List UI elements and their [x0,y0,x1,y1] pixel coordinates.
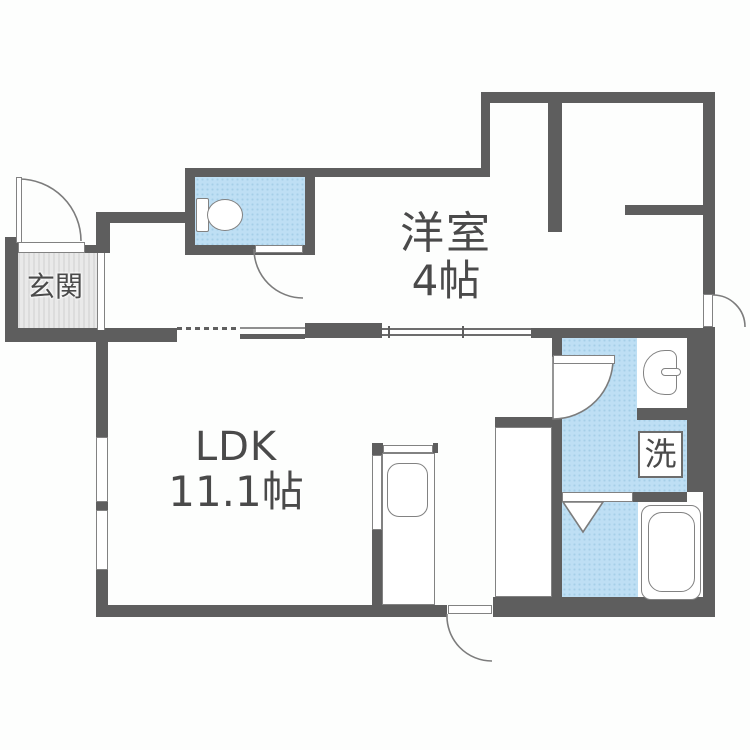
wall-western-room-south-east [531,328,715,338]
wall-washbasin-south [637,408,692,420]
laundry-label: 洗 [638,437,683,472]
western-room-door-arc [252,247,308,303]
wall-corridor-north [96,212,185,223]
wall-top [481,92,715,103]
wall-western-room-west-upper [305,168,315,255]
kitchen-side-panel [372,455,382,530]
wall-bathroom-north [633,492,687,502]
genkan-step-edge [97,253,105,330]
kitchen-partition-cabinet [495,427,552,597]
entrance-door-leaf [16,177,22,243]
wall-closet-stub [625,205,703,215]
passage-threshold-line [240,327,305,329]
wall-duct-block [687,338,703,492]
passage-threshold-bar [240,334,305,339]
wall-toilet-north [185,168,490,177]
kitchen-sink-icon [387,463,428,517]
western-room-size: 4帖 [346,258,546,303]
right-wall-door-arc [711,293,750,333]
window-left-1 [96,437,108,502]
ldk-name: LDK [136,426,336,469]
wall-kitchen-side [372,530,382,605]
wall-washroom-west-lower [552,417,562,607]
wall-bottom-right [493,597,715,617]
wall-left-lower [96,570,108,617]
window-left-2 [96,510,108,570]
western-room-label: 洋室 4帖 [346,210,546,303]
ldk-size: 11.1帖 [136,469,336,514]
washroom-door-arc [551,355,619,423]
sliding-door-tick-2 [462,326,464,338]
western-room-name: 洋室 [346,210,546,258]
wall-genkan-south [5,328,177,342]
toilet-bowl-icon [207,199,243,231]
bathroom-folding-door-icon [562,501,606,535]
wall-toilet-west [185,168,195,255]
sliding-door-tick-1 [388,326,390,338]
washbasin-tap-icon [661,368,681,376]
kitchen-counter-top-bar [383,445,433,453]
wall-kitchen-stub-right [433,443,438,453]
wall-left-upper [96,328,108,437]
floorplan-canvas: 洗 玄関 洋室 4帖 LDK 11.1帖 [0,0,750,750]
wall-western-room-west-lower [305,323,315,338]
wall-top-left-jog [481,92,490,177]
bathtub-inner-icon [648,512,695,592]
wall-left-window-mullion [96,502,108,510]
wall-right-upper [703,92,715,295]
wall-western-room-south-west [305,323,382,338]
washroom-door-leaf [553,355,615,364]
open-passage-dashed-line [177,327,240,330]
wall-bottom-left [97,605,447,617]
wall-closet-divider [548,92,562,232]
bottom-door-arc [445,612,497,664]
sliding-door [382,328,531,336]
entrance-door-arc [16,177,86,245]
genkan-label: 玄関 [13,272,97,302]
western-room-door-leaf [255,245,303,253]
wall-right-lower [703,338,715,617]
bottom-door-leaf [448,605,492,614]
ldk-label: LDK 11.1帖 [136,426,336,515]
